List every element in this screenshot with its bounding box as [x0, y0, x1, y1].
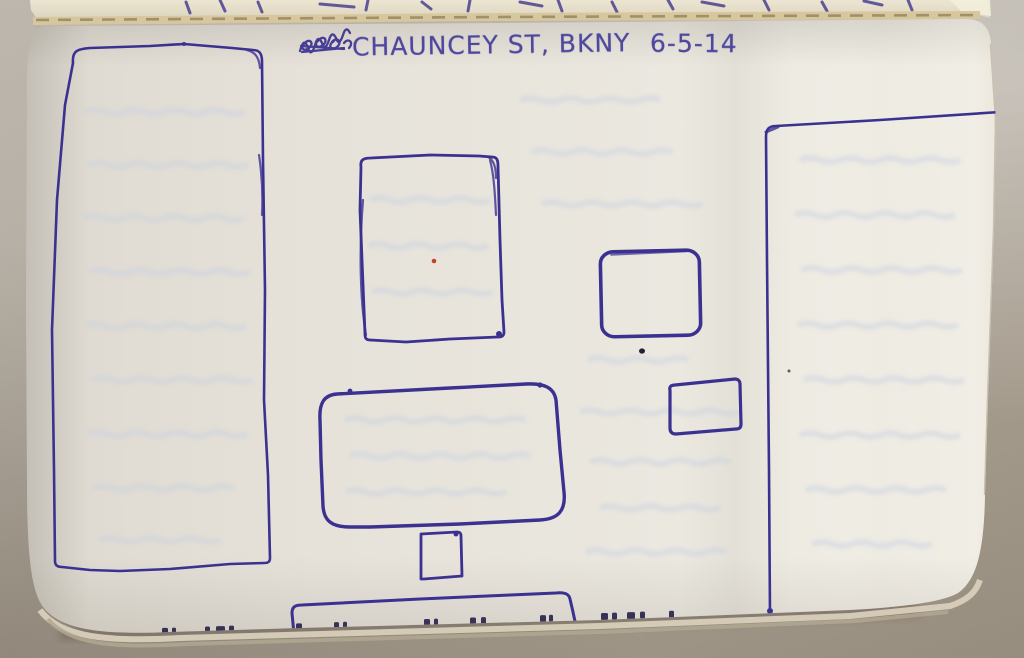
notebook-photo: CHAUNCEY ST, BKNY 6-5-14 [0, 0, 1024, 658]
ink-speck [788, 370, 791, 373]
ink-speck [639, 348, 645, 353]
notebook-page-sketch [0, 0, 1024, 658]
page-title: CHAUNCEY ST, BKNY [352, 29, 631, 61]
page-header: CHAUNCEY ST, BKNY 6-5-14 [352, 30, 738, 60]
red-ink-dot [432, 259, 437, 264]
page-date: 6-5-14 [650, 30, 738, 58]
